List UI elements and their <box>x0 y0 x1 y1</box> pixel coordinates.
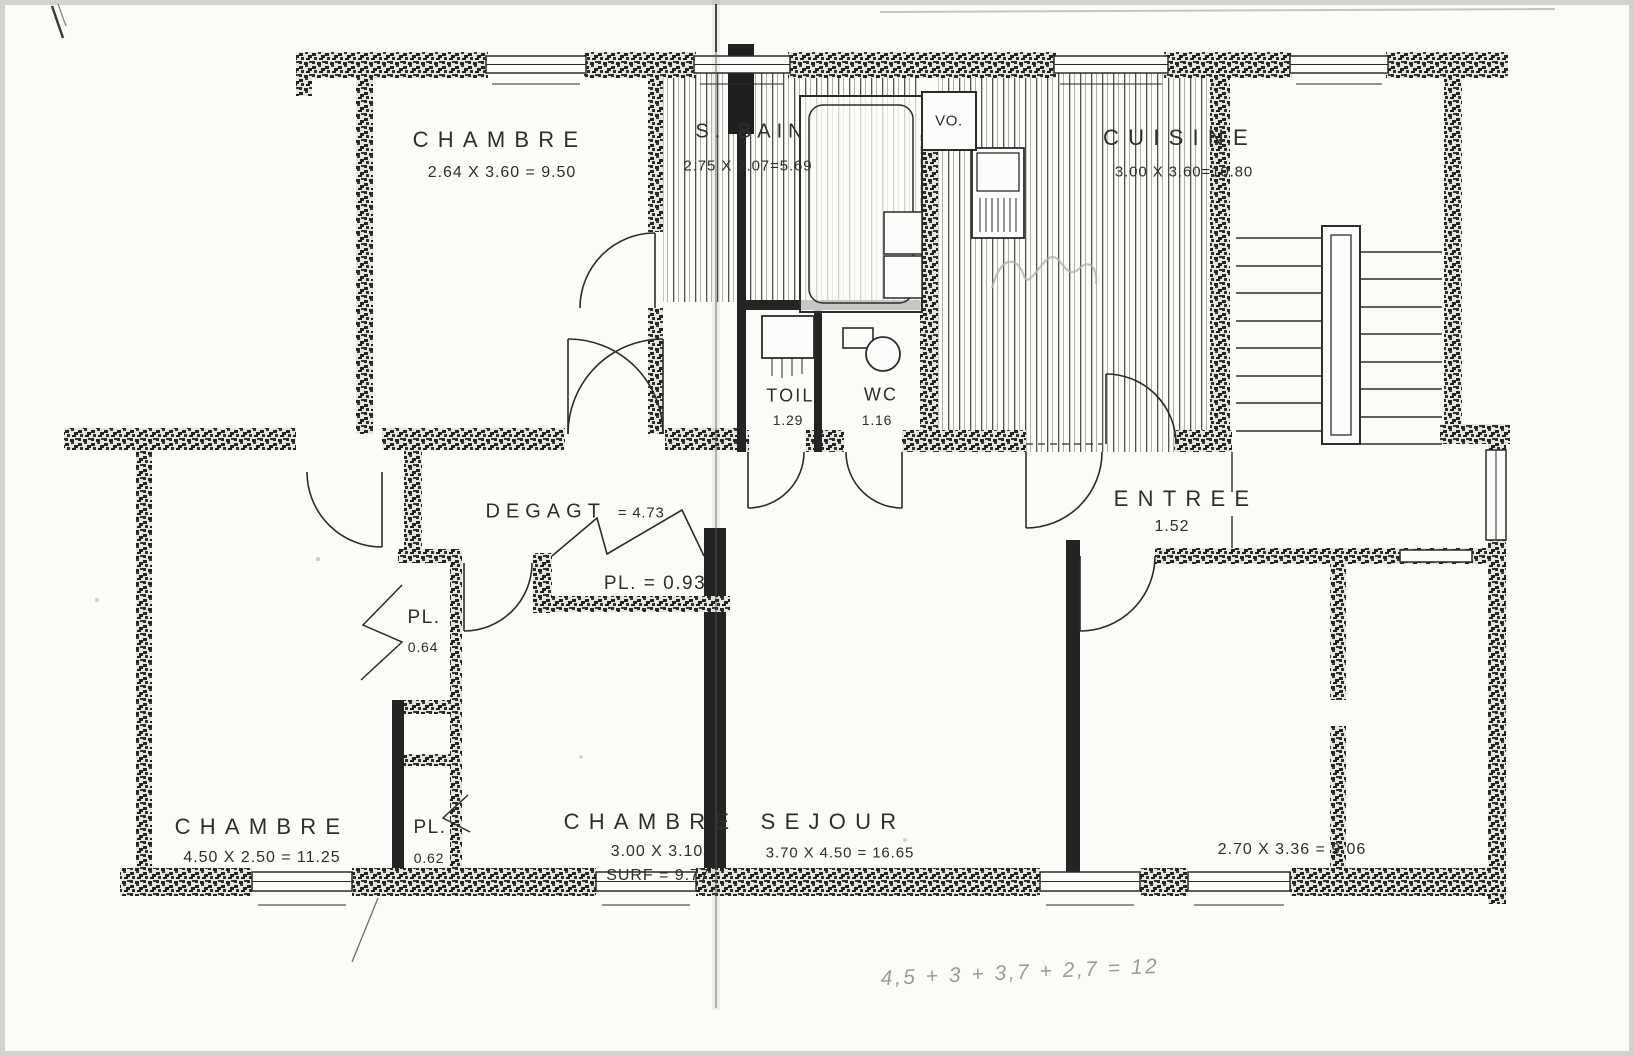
room-dims-chambre-left: 4.50 X 2.50 = 11.25 <box>183 849 340 867</box>
room-label-chambre-top: CHAMBRE <box>413 127 588 153</box>
room-dims-sejour: 3.70 X 4.50 = 16.65 <box>766 845 914 862</box>
room-label-sejour: SEJOUR <box>761 809 906 835</box>
room-label-chambre-left: CHAMBRE <box>175 814 350 840</box>
room-dims-chambre-mid: 3.00 X 3.10 <box>611 843 703 861</box>
degagement-name: DEGAGT <box>485 501 605 524</box>
floor-plan-page: CHAMBRE 2.64 X 3.60 = 9.50 S. BAIN 2.75 … <box>0 0 1634 1056</box>
staircase <box>1236 226 1442 444</box>
washbasin <box>762 316 814 378</box>
room-label-chambre-mid: CHAMBRE <box>564 809 739 835</box>
room-dims-placard-lower: 0.62 <box>414 850 445 866</box>
corner-pen-mark <box>52 6 63 38</box>
floorplan-drawing <box>0 0 1634 1056</box>
room-label-placard-lower: PL. <box>413 817 446 839</box>
room-label-placard-upper: PL. <box>407 607 440 629</box>
room-dims-entree: 1.52 <box>1155 518 1190 536</box>
toilet <box>843 328 900 371</box>
room-label-wc: WC <box>864 385 898 406</box>
room-surface-chambre-mid: SURF = 9.77 <box>606 867 710 885</box>
room-label-toilette: TOIL. <box>766 386 821 407</box>
room-dims-right-room: 2.70 X 3.36 = 9.06 <box>1218 841 1367 859</box>
room-label-entree: ENTREE <box>1114 486 1259 512</box>
room-label-degagement: DEGAGT = 4.73 <box>485 501 664 524</box>
room-dims-bathroom: 2.75 X 2.07=5.69 <box>683 158 812 175</box>
room-dims-cuisine: 3.00 X 3.60=10.80 <box>1115 164 1253 181</box>
room-label-cuisine: CUISINE <box>1103 125 1257 151</box>
room-label-placard-hall: PL. = 0.93 <box>604 573 706 595</box>
degagement-area: = 4.73 <box>618 505 665 522</box>
room-label-bathroom: S. BAIN <box>695 121 808 144</box>
pencil-stroke <box>352 898 378 962</box>
kitchen-sink <box>972 148 1024 238</box>
hatched-floor-kitchen <box>938 62 1210 452</box>
room-label-refuse-chute: VO. <box>935 113 963 130</box>
room-dims-toilette: 1.29 <box>773 412 804 428</box>
room-dims-placard-upper: 0.64 <box>408 639 439 655</box>
room-dims-chambre-top: 2.64 X 3.60 = 9.50 <box>428 164 577 182</box>
room-dims-wc: 1.16 <box>862 412 893 428</box>
